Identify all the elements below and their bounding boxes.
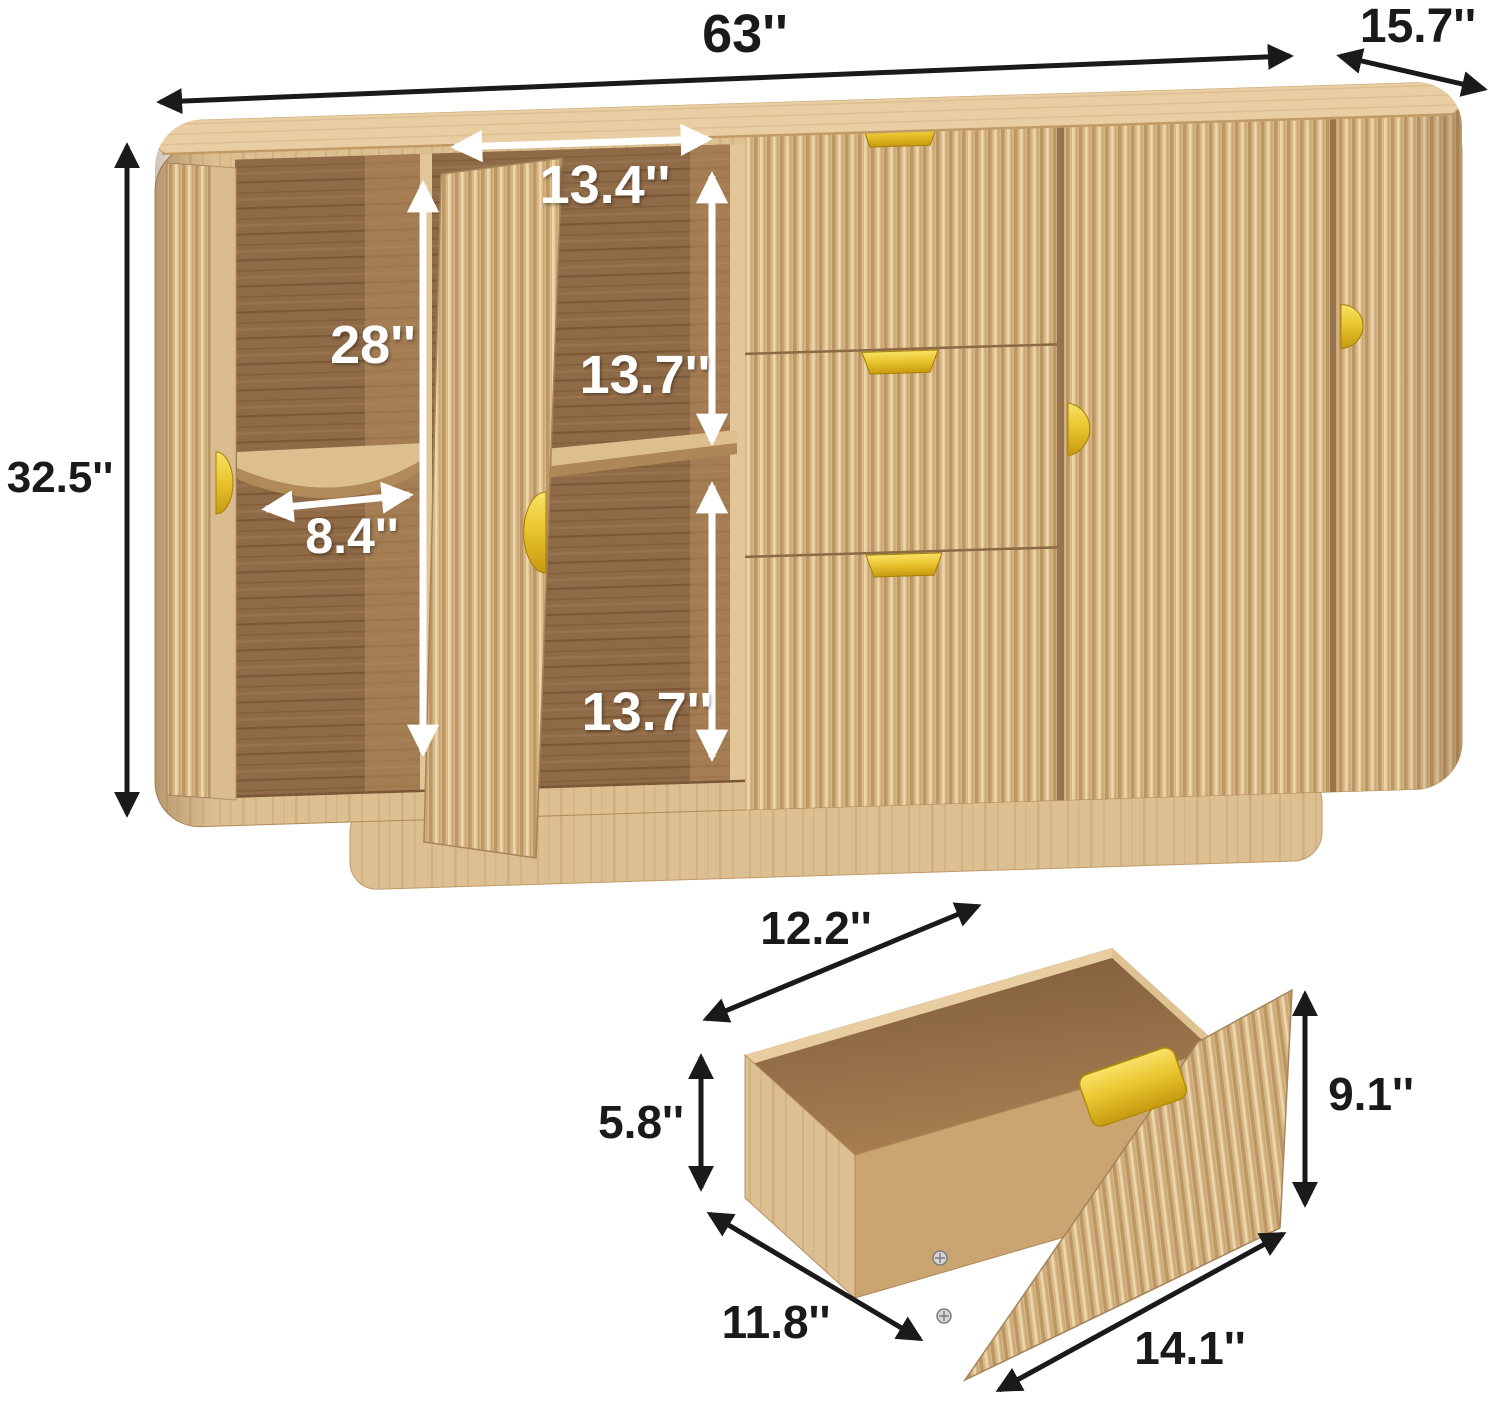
interior-height-label: 28'' bbox=[330, 315, 416, 375]
dimension-diagram: 63'' 15.7'' 32.5'' 12.2'' 5.8'' 9.1'' 11… bbox=[0, 0, 1500, 1406]
lower-compartment-height-label: 13.7'' bbox=[582, 682, 713, 742]
drawer-inner-height-label: 5.8'' bbox=[598, 1096, 684, 1148]
compartment-front-divider bbox=[730, 144, 745, 782]
door-gap-2 bbox=[1330, 109, 1336, 792]
drawer-front-height-label: 9.1'' bbox=[1328, 1068, 1414, 1120]
height-dimension-label: 32.5'' bbox=[7, 453, 114, 502]
drawer-front-width-label: 14.1'' bbox=[1134, 1322, 1245, 1374]
depth-dimension-label: 15.7'' bbox=[1360, 0, 1476, 53]
cabinet-illustration bbox=[155, 81, 1462, 896]
drawer-inner-depth-label: 11.8'' bbox=[722, 1296, 831, 1348]
left-open-door bbox=[167, 163, 236, 800]
corner-shelf-width-label: 8.4'' bbox=[305, 508, 398, 564]
width-dimension-label: 63'' bbox=[702, 4, 788, 64]
drawer-2-gold-handle bbox=[862, 350, 938, 374]
door-gap-1 bbox=[1057, 117, 1064, 800]
drawer-3-gold-handle bbox=[866, 553, 942, 577]
upper-compartment-height-label: 13.7'' bbox=[580, 345, 711, 405]
center-right-door bbox=[1064, 109, 1330, 800]
drawer-inner-width-label: 12.2'' bbox=[760, 902, 871, 954]
right-end-shading bbox=[1400, 81, 1462, 790]
top-section-width-label: 13.4'' bbox=[540, 155, 671, 215]
drawer-stack-front bbox=[745, 117, 1057, 810]
left-open-door-fluted-face bbox=[167, 163, 210, 798]
